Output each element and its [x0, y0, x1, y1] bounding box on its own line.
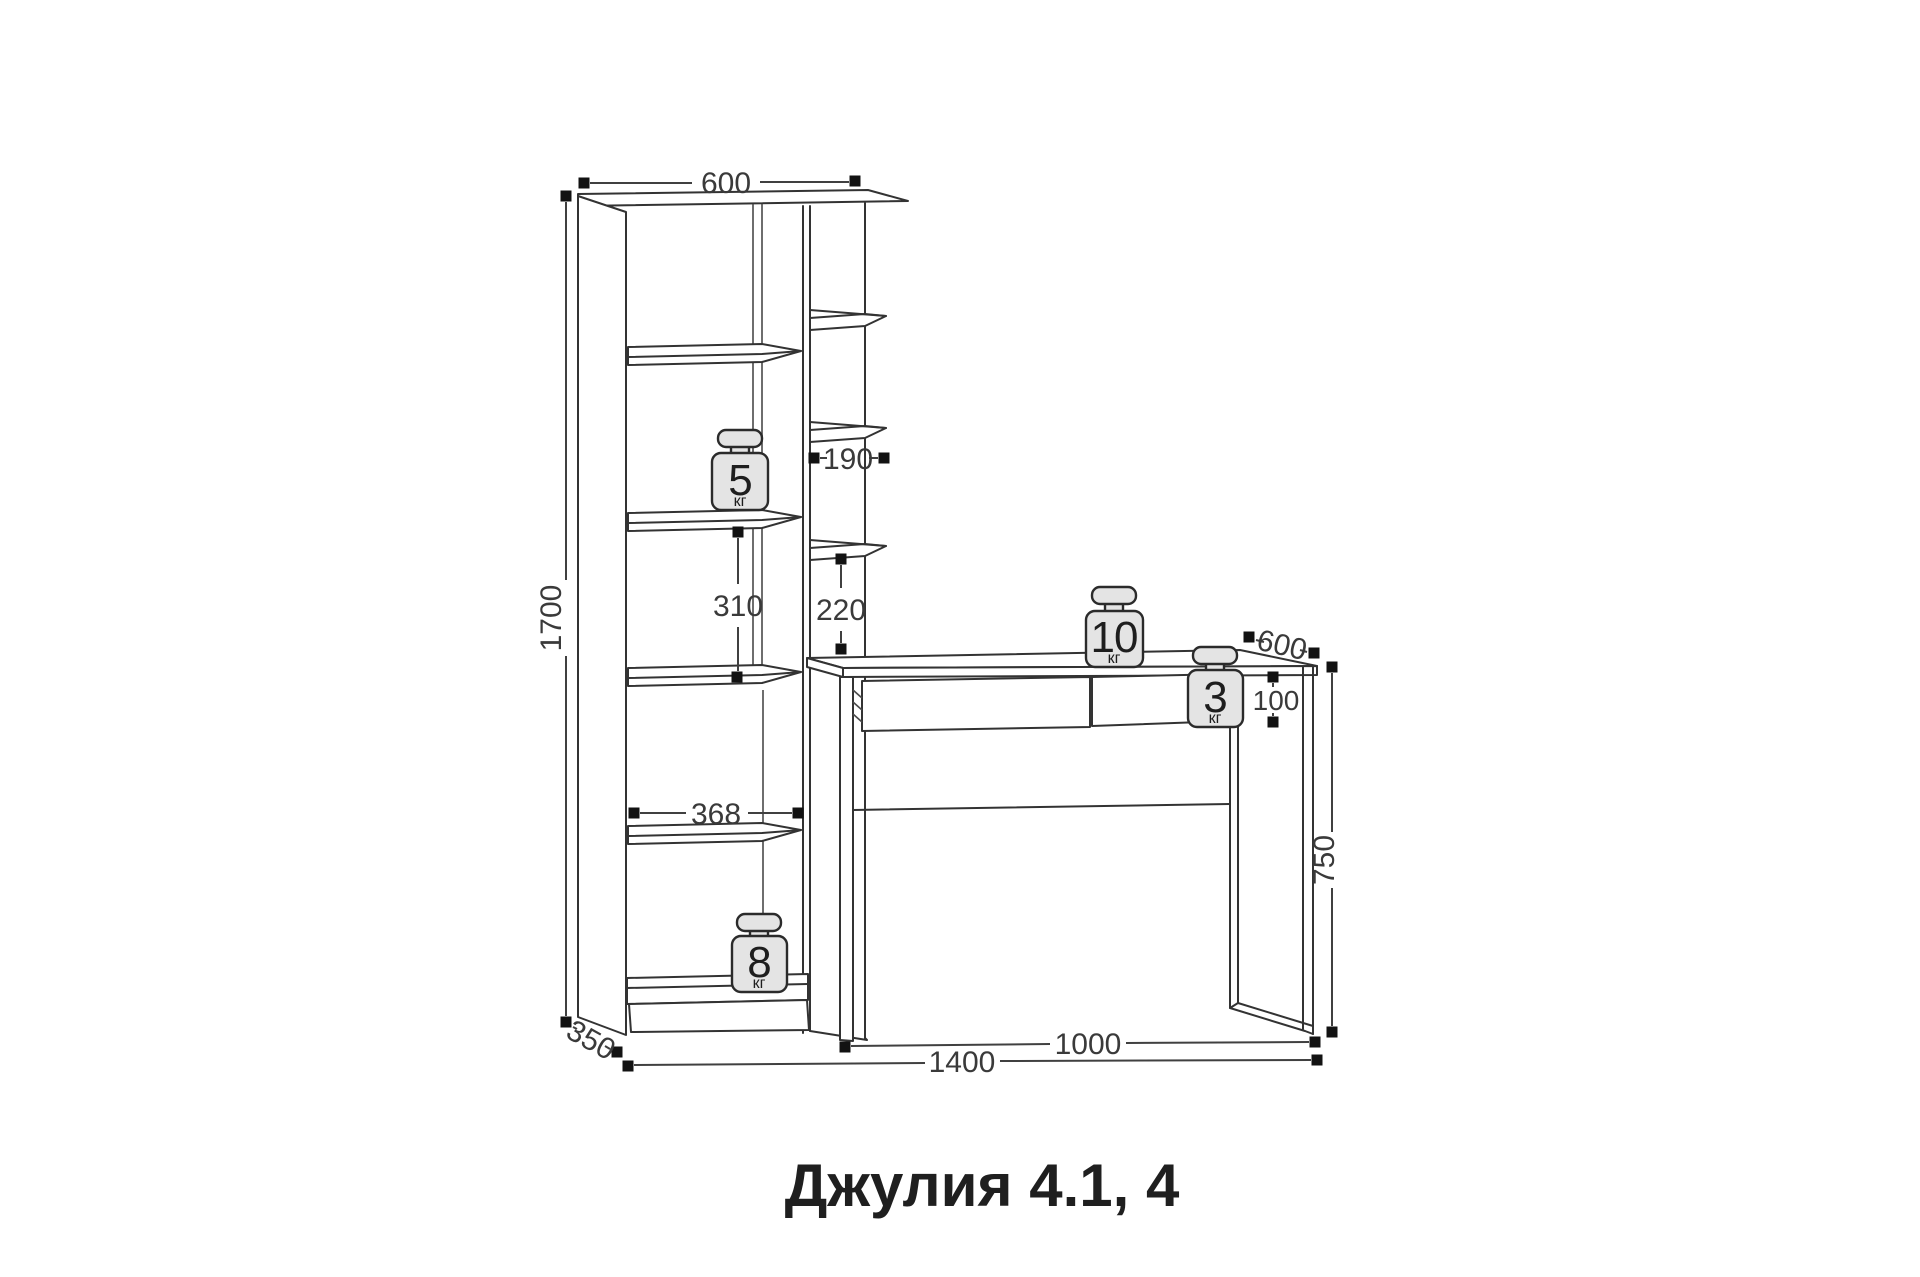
dim-marker	[623, 1061, 634, 1072]
dim-label-bay-inner-width: 368	[691, 798, 741, 831]
column-shelf-2	[810, 422, 886, 442]
dim-bay-shelf-spacing: 310	[713, 527, 763, 683]
weight-icon-bottom-shelf: 8 кг	[732, 914, 787, 992]
dimensions: 600 1700 190 310 220	[535, 167, 1341, 1079]
dim-marker	[561, 191, 572, 202]
dim-column-inner-width: 190	[809, 443, 890, 476]
weight-unit: кг	[753, 975, 766, 992]
column-base-edge	[810, 1031, 867, 1040]
weight-icon-bay-shelf: 5 кг	[712, 430, 768, 510]
column-shelf-1	[810, 310, 886, 330]
dim-marker	[840, 1042, 851, 1053]
drawing-title: Джулия 4.1, 4	[785, 1152, 1180, 1219]
dim-marker	[579, 178, 590, 189]
dim-marker	[1268, 717, 1279, 728]
dim-total-height: 1700	[535, 191, 572, 1028]
dim-marker	[793, 808, 804, 819]
dim-total-width: 1400	[623, 1046, 1323, 1079]
modesty-panel-edge	[853, 804, 1230, 810]
dim-label-column-inner-width: 190	[823, 443, 873, 476]
dim-marker	[1327, 662, 1338, 673]
weight-unit: кг	[1108, 650, 1121, 667]
shelf-left-panel	[578, 196, 626, 1035]
dim-label-column-shelf-spacing: 220	[816, 594, 866, 627]
dim-label-top-width: 600	[701, 167, 751, 200]
furniture-technical-drawing: 600 1700 190 310 220	[0, 0, 1920, 1277]
dim-marker	[809, 453, 820, 464]
weight-icon-desk-side: 3 кг	[1188, 647, 1243, 727]
drawer-front	[862, 677, 1090, 731]
column-shelf-3	[810, 540, 886, 560]
desktop-surface	[807, 650, 1317, 668]
dim-marker	[836, 644, 847, 655]
weight-icon-desktop: 10 кг	[1086, 587, 1143, 667]
bay-shelf-3	[628, 665, 801, 686]
dim-marker	[1268, 672, 1279, 683]
dim-desk-width: 1000	[840, 1028, 1321, 1061]
dim-marker	[1310, 1037, 1321, 1048]
dim-marker	[879, 453, 890, 464]
dim-drawer-height: 100	[1253, 672, 1300, 728]
dim-marker	[629, 808, 640, 819]
dim-marker	[1327, 1027, 1338, 1038]
dim-marker	[1312, 1055, 1323, 1066]
dim-label-desk-width: 1000	[1055, 1028, 1122, 1061]
weight-unit: кг	[734, 493, 747, 510]
column-left-wall	[803, 206, 810, 1033]
weight-unit: кг	[1209, 710, 1222, 727]
drawing-page: 600 1700 190 310 220	[0, 0, 1920, 1277]
bay-shelf-2	[628, 510, 801, 531]
dim-marker	[850, 176, 861, 187]
dim-label-total-width: 1400	[929, 1046, 996, 1079]
dim-marker	[1309, 648, 1320, 659]
dim-marker	[836, 554, 847, 565]
drawer-slide-hatch	[853, 690, 862, 722]
dim-label-desk-height: 750	[1308, 835, 1341, 885]
bay-shelf-1	[628, 344, 801, 365]
dim-label-total-height: 1700	[535, 585, 568, 652]
desk-left-leg	[840, 677, 853, 1041]
desktop-front-edge	[843, 666, 1317, 677]
dim-marker	[733, 527, 744, 538]
dim-label-bay-shelf-spacing: 310	[713, 590, 763, 623]
plinth	[629, 1000, 809, 1032]
dim-column-shelf-spacing: 220	[816, 554, 866, 655]
dim-marker	[1244, 632, 1255, 643]
dim-label-drawer-height: 100	[1253, 685, 1300, 716]
dim-marker	[732, 672, 743, 683]
